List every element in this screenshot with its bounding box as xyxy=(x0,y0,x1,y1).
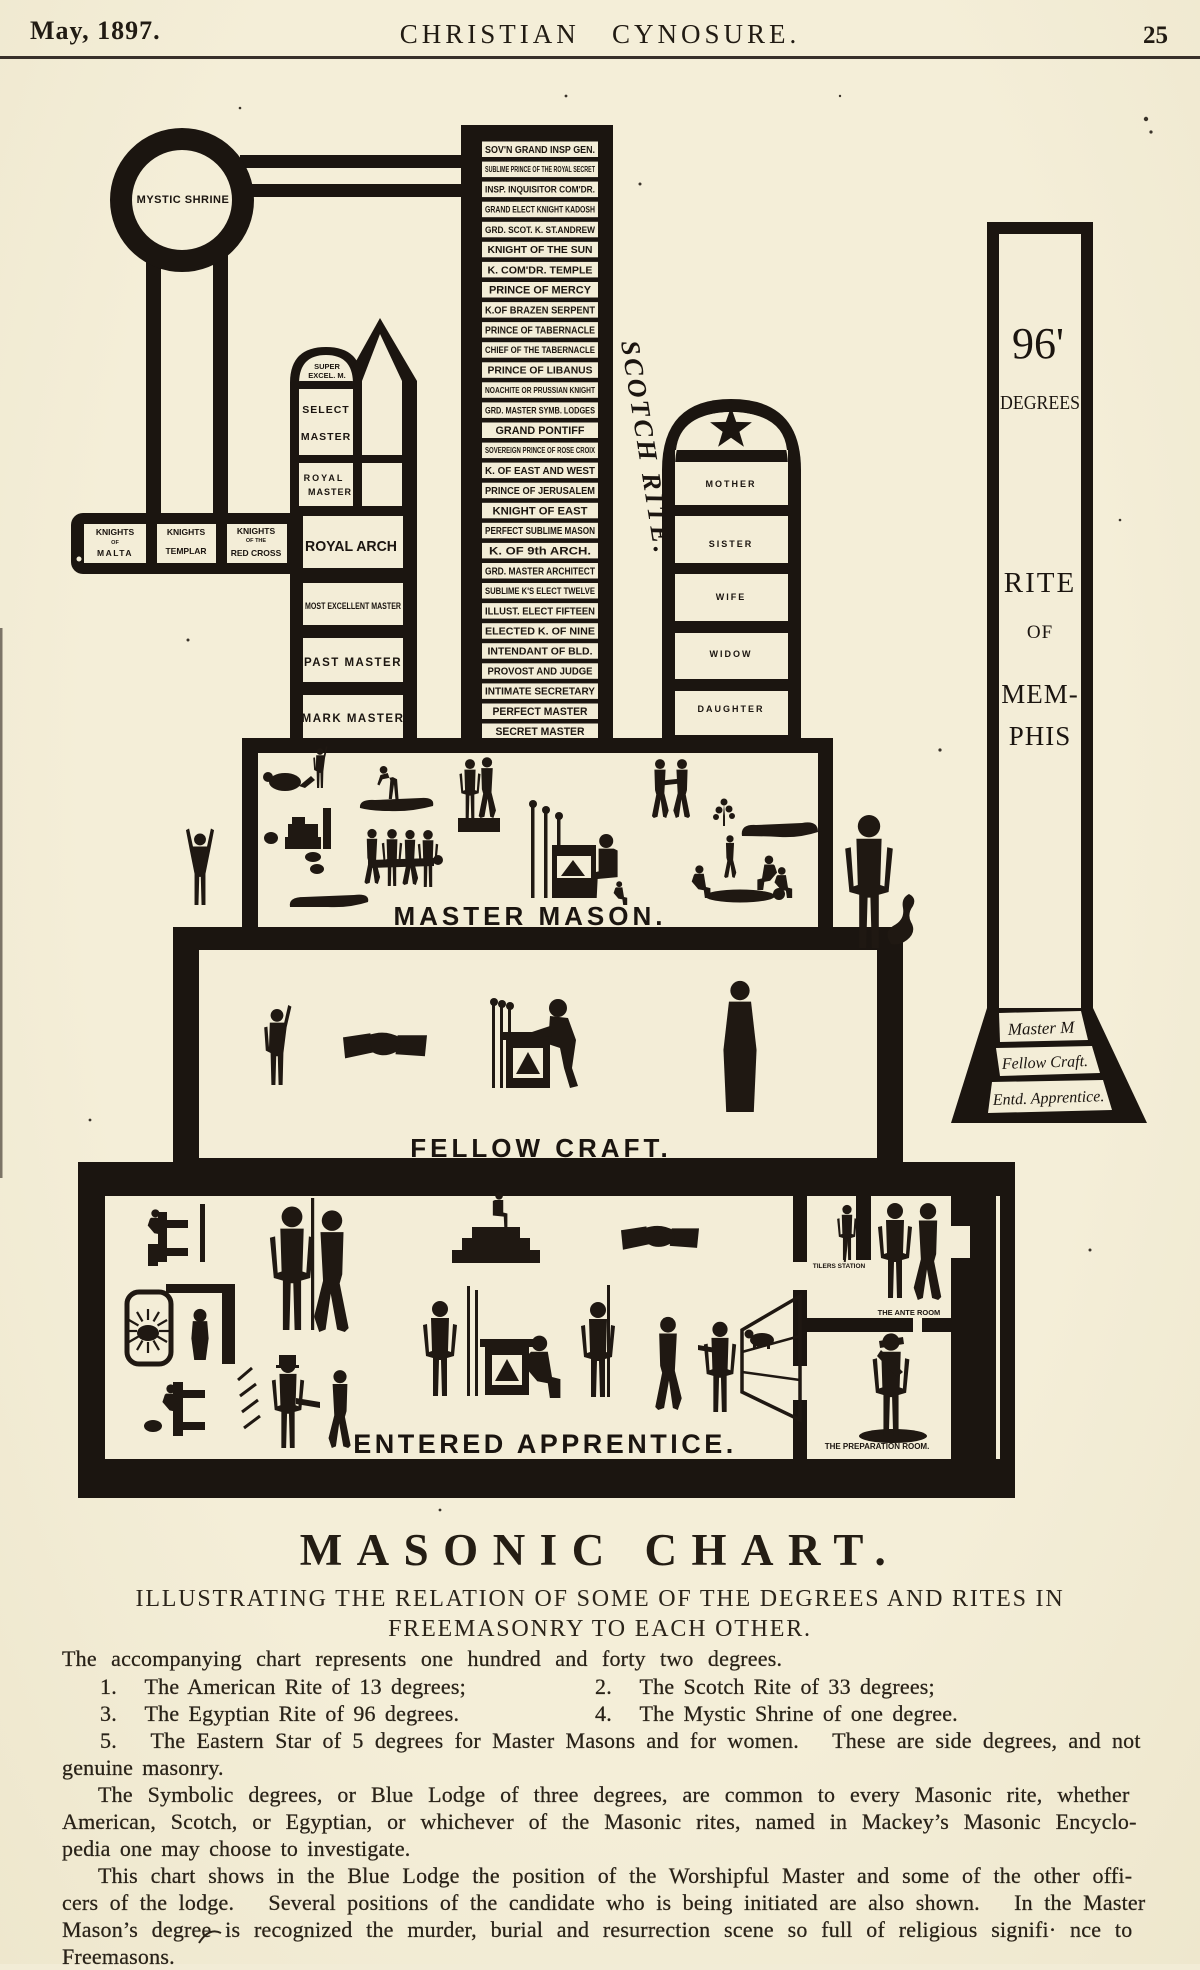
svg-text:KNIGHT OF THE SUN: KNIGHT OF THE SUN xyxy=(488,245,593,256)
svg-text:ROYAL ARCH: ROYAL ARCH xyxy=(305,538,397,555)
svg-text:K. OF 9th ARCH.: K. OF 9th ARCH. xyxy=(489,546,591,558)
svg-text:OF: OF xyxy=(111,540,119,546)
svg-text:RITE: RITE xyxy=(1004,567,1076,599)
svg-text:INTENDANT OF BLD.: INTENDANT OF BLD. xyxy=(488,647,593,658)
svg-text:GRD. MASTER SYMB. LODGES: GRD. MASTER SYMB. LODGES xyxy=(485,405,595,415)
svg-text:MASTER: MASTER xyxy=(301,431,351,443)
svg-text:EXCEL. M.: EXCEL. M. xyxy=(308,371,346,380)
svg-text:SELECT: SELECT xyxy=(302,404,349,416)
svg-text:SOVEREIGN PRINCE OF ROSE CROIX: SOVEREIGN PRINCE OF ROSE CROIX xyxy=(485,446,595,455)
svg-text:NOACHITE OR PRUSSIAN KNIGHT: NOACHITE OR PRUSSIAN KNIGHT xyxy=(485,386,595,395)
svg-text:SUPER: SUPER xyxy=(314,362,340,371)
svg-text:MOTHER: MOTHER xyxy=(706,479,757,489)
svg-text:GRD. SCOT. K. ST.ANDREW: GRD. SCOT. K. ST.ANDREW xyxy=(485,225,595,235)
svg-text:DAUGHTER: DAUGHTER xyxy=(698,704,765,714)
svg-text:GRAND ELECT KNIGHT KADOSH: GRAND ELECT KNIGHT KADOSH xyxy=(485,205,595,215)
svg-text:GRAND PONTIFF: GRAND PONTIFF xyxy=(496,425,585,437)
svg-text:96': 96' xyxy=(1012,319,1064,368)
svg-text:THE ANTE ROOM: THE ANTE ROOM xyxy=(878,1308,941,1317)
svg-text:SECRET MASTER: SECRET MASTER xyxy=(496,726,585,738)
svg-text:PERFECT MASTER: PERFECT MASTER xyxy=(493,706,588,718)
svg-text:INTIMATE SECRETARY: INTIMATE SECRETARY xyxy=(485,687,595,698)
svg-text:PROVOST AND JUDGE: PROVOST AND JUDGE xyxy=(488,667,593,678)
svg-text:MYSTIC SHRINE: MYSTIC SHRINE xyxy=(137,194,230,206)
svg-text:SUBLIME PRINCE OF THE ROYAL SE: SUBLIME PRINCE OF THE ROYAL SECRET xyxy=(485,165,595,174)
svg-text:Master M: Master M xyxy=(1006,1018,1075,1039)
svg-text:KNIGHTS: KNIGHTS xyxy=(167,527,206,537)
svg-text:FELLOW CRAFT.: FELLOW CRAFT. xyxy=(410,1133,671,1163)
svg-text:PRINCE OF MERCY: PRINCE OF MERCY xyxy=(489,285,592,297)
svg-text:OF: OF xyxy=(1027,622,1053,643)
svg-text:ENTERED APPRENTICE.: ENTERED APPRENTICE. xyxy=(353,1429,737,1459)
svg-text:MARK MASTER: MARK MASTER xyxy=(302,713,405,725)
svg-text:OF THE: OF THE xyxy=(246,538,266,544)
svg-text:KNIGHT OF EAST: KNIGHT OF EAST xyxy=(493,506,588,518)
svg-text:PERFECT SUBLIME MASON: PERFECT SUBLIME MASON xyxy=(485,526,595,537)
svg-text:DEGREES: DEGREES xyxy=(1000,392,1080,414)
svg-text:MEM-: MEM- xyxy=(1001,679,1079,709)
svg-text:PAST MASTER: PAST MASTER xyxy=(304,657,402,669)
svg-text:K. COM'DR. TEMPLE: K. COM'DR. TEMPLE xyxy=(488,265,593,276)
svg-text:SOV'N GRAND INSP GEN.: SOV'N GRAND INSP GEN. xyxy=(485,145,595,156)
svg-text:WIFE: WIFE xyxy=(716,592,747,602)
svg-text:MASTER: MASTER xyxy=(308,487,352,497)
svg-text:WIDOW: WIDOW xyxy=(710,649,753,659)
svg-text:TILERS STATION: TILERS STATION xyxy=(813,1263,866,1270)
svg-text:KNIGHTS: KNIGHTS xyxy=(96,527,135,537)
svg-text:ROYAL: ROYAL xyxy=(304,473,345,483)
svg-text:SISTER: SISTER xyxy=(709,539,754,549)
svg-text:Fellow Craft.: Fellow Craft. xyxy=(1001,1053,1089,1073)
svg-text:PRINCE OF JERUSALEM: PRINCE OF JERUSALEM xyxy=(485,486,595,497)
svg-text:PRINCE OF TABERNACLE: PRINCE OF TABERNACLE xyxy=(485,326,595,337)
svg-text:K. OF EAST AND WEST: K. OF EAST AND WEST xyxy=(485,466,595,477)
svg-text:MASTER MASON.: MASTER MASON. xyxy=(394,901,667,931)
svg-text:ILLUST. ELECT FIFTEEN: ILLUST. ELECT FIFTEEN xyxy=(485,607,595,618)
svg-text:GRD. MASTER ARCHITECT: GRD. MASTER ARCHITECT xyxy=(485,566,595,577)
svg-text:RED CROSS: RED CROSS xyxy=(231,548,282,558)
svg-text:THE PREPARATION ROOM.: THE PREPARATION ROOM. xyxy=(825,1442,930,1451)
svg-text:MOST EXCELLENT MASTER: MOST EXCELLENT MASTER xyxy=(305,601,401,612)
svg-text:ELECTED K. OF NINE: ELECTED K. OF NINE xyxy=(485,627,595,638)
svg-text:MALTA: MALTA xyxy=(97,548,133,558)
svg-text:SUBLIME K'S ELECT TWELVE: SUBLIME K'S ELECT TWELVE xyxy=(485,586,595,596)
svg-text:PRINCE OF LIBANUS: PRINCE OF LIBANUS xyxy=(488,366,593,377)
svg-text:INSP. INQUISITOR COM'DR.: INSP. INQUISITOR COM'DR. xyxy=(485,185,595,195)
svg-text:K.OF BRAZEN SERPENT: K.OF BRAZEN SERPENT xyxy=(485,305,595,316)
svg-text:PHIS: PHIS xyxy=(1009,721,1072,751)
svg-text:KNIGHTS: KNIGHTS xyxy=(237,526,276,536)
svg-text:TEMPLAR: TEMPLAR xyxy=(165,546,206,556)
svg-text:CHIEF OF THE TABERNACLE: CHIEF OF THE TABERNACLE xyxy=(485,345,595,355)
